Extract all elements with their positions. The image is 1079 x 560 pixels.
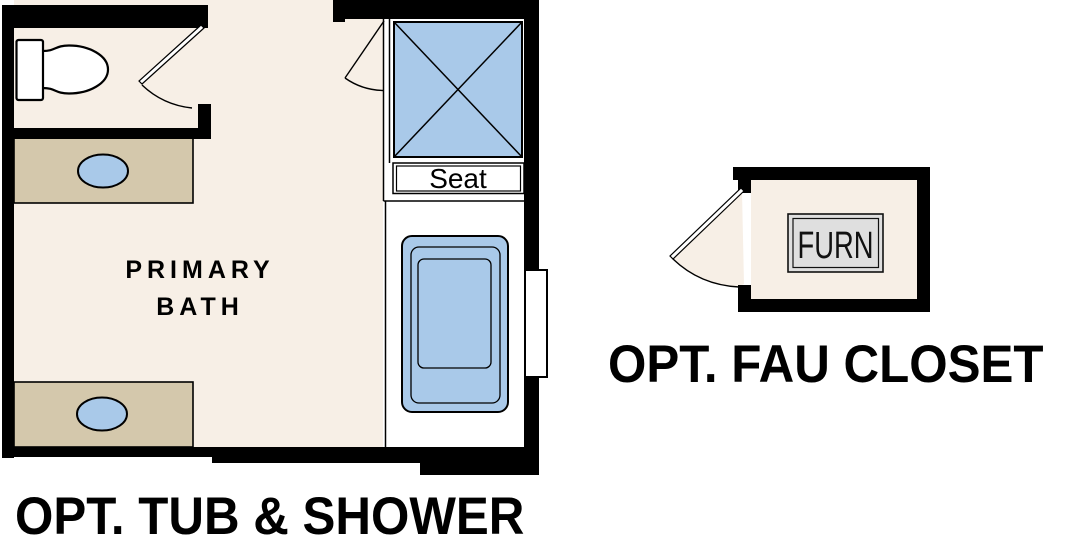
wall-toilet-room-bottom [2,128,211,139]
primary-bath-plan [2,0,547,475]
closet-wall-top [733,167,930,180]
wall-toilet-door-stub [198,104,211,139]
vanity-counter-top [14,138,193,203]
primary-bath-label-line2: BATH [60,289,340,326]
wall-bottom-left [2,447,212,457]
wall-top-right [333,0,539,19]
wall-right [524,0,539,475]
vanity-counter-bottom [14,382,193,447]
closet-door-swing-area [672,192,744,287]
tub-shower-caption: OPT. TUB & SHOWER [15,490,524,543]
toilet-bowl [43,46,108,94]
seat-label: Seat [398,165,518,193]
primary-bath-label-line1: PRIMARY [60,252,340,289]
closet-wall-left-bottom-stub [738,285,751,312]
furnace-label: FURN [792,227,879,265]
wall-toilet-room-top [2,5,208,28]
sink-basin-bottom [77,398,127,431]
wall-bottom-middle [212,447,420,463]
wall-top-right-step [333,0,345,22]
fau-closet-caption: OPT. FAU CLOSET [608,338,1043,391]
primary-bath-label: PRIMARY BATH [60,252,340,326]
closet-wall-right [917,167,930,312]
bathtub [402,236,508,412]
closet-wall-bottom [738,299,930,312]
sink-basin-top [78,155,128,188]
wall-left [2,5,14,458]
window [525,270,547,377]
floor-plan-canvas: PRIMARY BATH Seat FURN OPT. TUB & SHOWER… [0,0,1079,560]
toilet-tank [17,40,44,100]
wall-bottom-right [420,447,539,475]
